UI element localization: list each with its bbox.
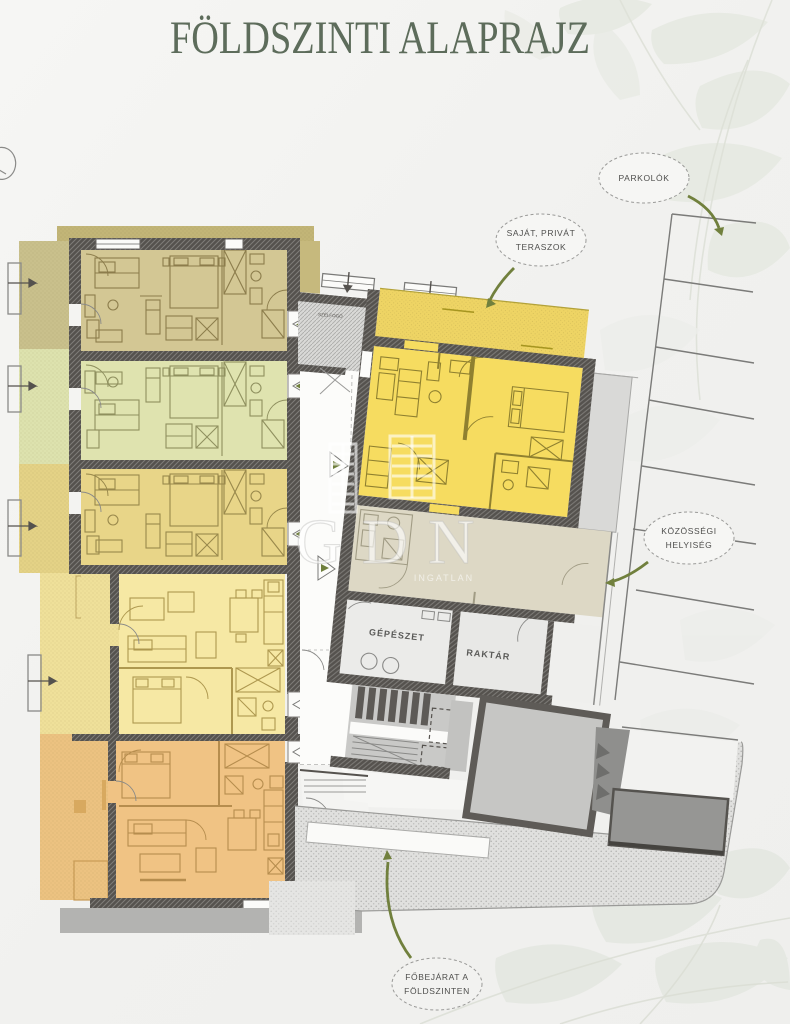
svg-text:KÖZÖSSÉGI: KÖZÖSSÉGI: [661, 526, 716, 536]
svg-text:TERASZOK: TERASZOK: [516, 242, 567, 252]
svg-text:INGATLAN: INGATLAN: [414, 573, 474, 583]
svg-text:HELYISÉG: HELYISÉG: [666, 540, 713, 550]
svg-text:FÖLDSZINTI ALAPRAJZ: FÖLDSZINTI ALAPRAJZ: [170, 12, 590, 64]
svg-text:SAJÁT, PRIVÁT: SAJÁT, PRIVÁT: [507, 228, 576, 238]
svg-text:GDN: GDN: [296, 506, 495, 577]
svg-text:PARKOLÓK: PARKOLÓK: [619, 173, 670, 183]
svg-text:FŐBEJÁRAT A: FŐBEJÁRAT A: [405, 972, 468, 982]
svg-text:FÖLDSZINTEN: FÖLDSZINTEN: [404, 986, 470, 996]
